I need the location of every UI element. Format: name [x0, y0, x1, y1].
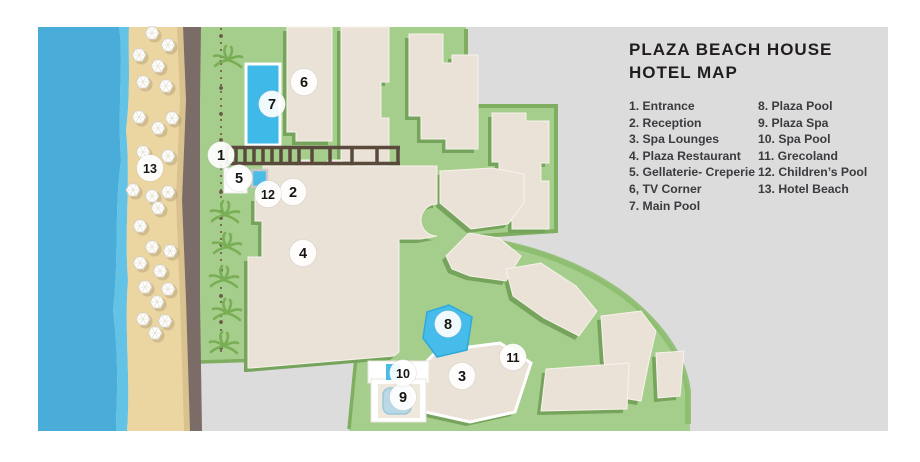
- marker-number: 6: [300, 75, 308, 91]
- legend-item-5: 5. Gellaterie- Creperie: [629, 164, 755, 181]
- legend-item-1: 1. Entrance: [629, 98, 755, 115]
- building-lower-right-2: [541, 363, 629, 411]
- map-marker-8[interactable]: 8: [435, 311, 462, 338]
- legend-title-line2: HOTEL MAP: [629, 61, 884, 84]
- marker-number: 2: [289, 185, 297, 201]
- legend-title: PLAZA BEACH HOUSE HOTEL MAP: [629, 38, 884, 84]
- legend-column-2: 8. Plaza Pool 9. Plaza Spa 10. Spa Pool …: [758, 98, 867, 198]
- map-marker-4[interactable]: 4: [290, 240, 317, 267]
- marker-number: 4: [299, 246, 307, 262]
- marker-number: 8: [444, 317, 452, 333]
- legend-item-13: 13. Hotel Beach: [758, 181, 867, 198]
- marker-number: 7: [268, 97, 276, 113]
- marker-number: 3: [458, 369, 466, 385]
- map-marker-7[interactable]: 7: [259, 91, 286, 118]
- legend-item-7: 7. Main Pool: [629, 198, 755, 215]
- marker-number: 9: [399, 390, 407, 406]
- map-marker-5[interactable]: 5: [226, 165, 253, 192]
- marker-number: 13: [143, 162, 157, 176]
- legend-column-1: 1. Entrance 2. Reception 3. Spa Lounges …: [629, 98, 755, 214]
- legend-item-12: 12. Children’s Pool: [758, 164, 867, 181]
- marker-number: 5: [235, 171, 243, 187]
- marker-number: 1: [217, 148, 225, 164]
- legend: PLAZA BEACH HOUSE HOTEL MAP 1. Entrance …: [629, 38, 884, 98]
- legend-title-line1: PLAZA BEACH HOUSE: [629, 38, 884, 61]
- sea-water: [38, 27, 121, 431]
- map-marker-12[interactable]: 12: [255, 181, 282, 208]
- map-marker-9[interactable]: 9: [390, 384, 417, 411]
- legend-item-6: 6, TV Corner: [629, 181, 755, 198]
- marker-number: 11: [506, 351, 519, 365]
- map-marker-6[interactable]: 6: [291, 69, 318, 96]
- building-lower-right-3: [656, 351, 684, 398]
- marker-number: 10: [396, 367, 410, 381]
- map-marker-13[interactable]: 13: [137, 155, 164, 182]
- map-marker-2[interactable]: 2: [280, 179, 307, 206]
- marker-number: 12: [261, 188, 275, 202]
- legend-item-10: 10. Spa Pool: [758, 131, 867, 148]
- map-marker-1[interactable]: 1: [208, 142, 235, 169]
- legend-item-4: 4. Plaza Restaurant: [629, 148, 755, 165]
- legend-item-8: 8. Plaza Pool: [758, 98, 867, 115]
- hotel-map-page: 12345678910111213 PLAZA BEACH HOUSE HOTE…: [0, 0, 920, 462]
- legend-item-11: 11. Grecoland: [758, 148, 867, 165]
- map-marker-11[interactable]: 11: [500, 344, 527, 371]
- legend-item-2: 2. Reception: [629, 115, 755, 132]
- map-marker-3[interactable]: 3: [449, 363, 476, 390]
- legend-item-9: 9. Plaza Spa: [758, 115, 867, 132]
- legend-item-3: 3. Spa Lounges: [629, 131, 755, 148]
- map-marker-10[interactable]: 10: [390, 360, 417, 387]
